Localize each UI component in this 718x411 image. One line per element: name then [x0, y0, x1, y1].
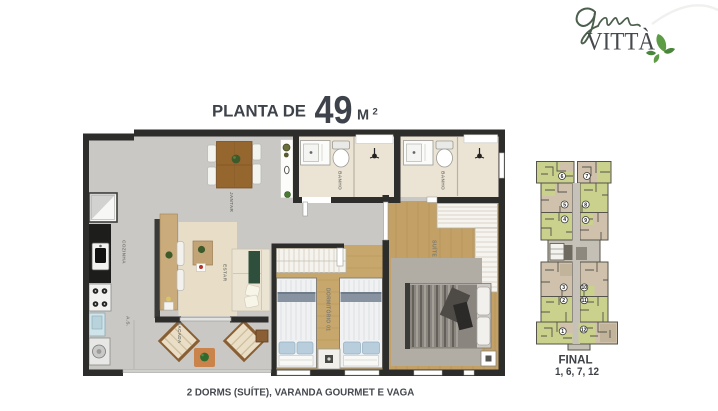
svg-text:M: M	[357, 108, 369, 124]
svg-text:ESTAR: ESTAR	[222, 264, 228, 282]
svg-text:5: 5	[563, 202, 566, 208]
svg-text:2: 2	[373, 107, 378, 118]
svg-text:VITTÀ: VITTÀ	[586, 28, 655, 56]
svg-text:BANHO: BANHO	[337, 171, 343, 190]
svg-text:2: 2	[562, 298, 565, 304]
svg-text:10: 10	[582, 285, 588, 291]
svg-text:4: 4	[563, 217, 566, 223]
svg-text:COZINHA: COZINHA	[121, 240, 127, 264]
svg-text:2 DORMS (SUÍTE), VARANDA GOURM: 2 DORMS (SUÍTE), VARANDA GOURMET E VAGA	[187, 386, 415, 399]
svg-text:12: 12	[581, 327, 587, 333]
svg-text:1: 1	[561, 329, 564, 335]
svg-text:9: 9	[584, 218, 587, 224]
svg-text:SACADA: SACADA	[177, 322, 182, 344]
svg-text:PLANTA DE: PLANTA DE	[212, 103, 306, 121]
svg-text:BANHO: BANHO	[440, 171, 446, 190]
svg-text:A.S.: A.S.	[125, 316, 131, 327]
svg-text:8: 8	[584, 202, 587, 208]
svg-text:7: 7	[586, 174, 589, 180]
svg-text:SUÍTE: SUÍTE	[431, 240, 439, 257]
svg-text:DORMITÓRIO 01: DORMITÓRIO 01	[325, 288, 333, 331]
svg-text:1, 6, 7, 12: 1, 6, 7, 12	[555, 366, 599, 378]
svg-text:49: 49	[315, 89, 353, 132]
svg-text:6: 6	[561, 174, 564, 180]
svg-text:JANTAR: JANTAR	[229, 192, 234, 212]
svg-text:FINAL: FINAL	[559, 355, 593, 367]
svg-text:11: 11	[582, 298, 588, 304]
svg-text:3: 3	[562, 285, 565, 291]
